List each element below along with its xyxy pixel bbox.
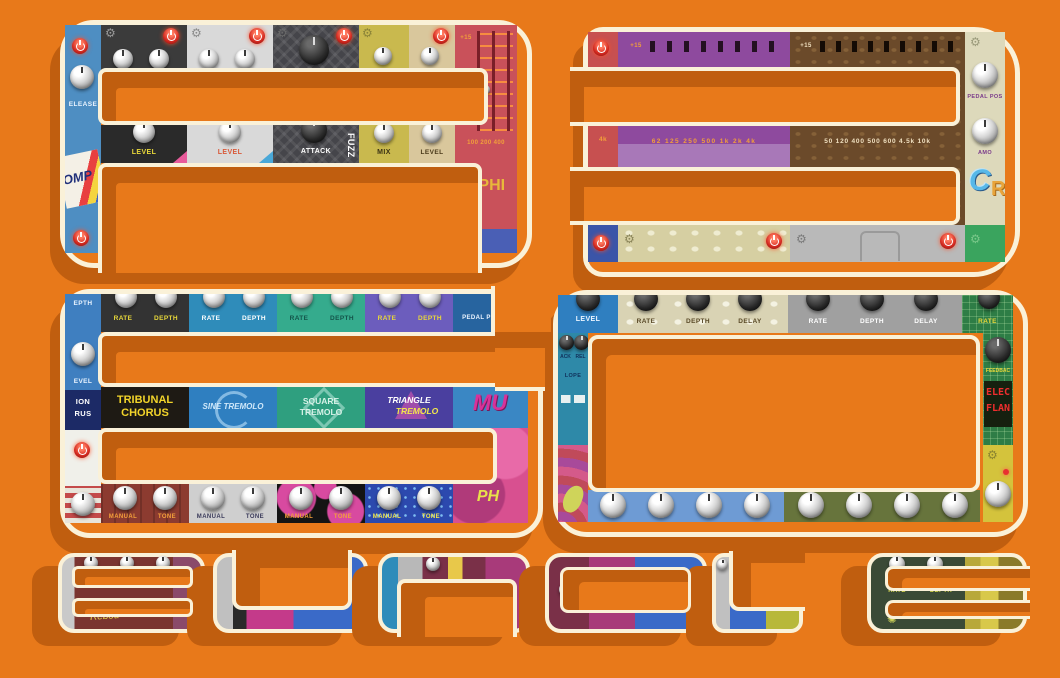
tone-label: TONE (145, 514, 189, 521)
big-knob (301, 125, 327, 143)
depth-label: EPTH (65, 300, 101, 307)
envelope-label: LOPE (558, 373, 588, 379)
rate-label: RATE (279, 315, 319, 322)
mu-label: MU (455, 391, 525, 415)
knob (422, 125, 442, 143)
power-button-icon (433, 28, 449, 44)
purple-eq-plus15: +15 (626, 43, 646, 50)
depth-label: DEPTH (409, 315, 451, 322)
pedal-dark-mid: LEVEL (101, 125, 187, 163)
knob (115, 294, 137, 308)
gear-icon: ⚙ (970, 233, 981, 245)
glyph-a-lower-cutout (98, 163, 482, 273)
amount-label: AMO (965, 150, 1005, 156)
knob (717, 559, 728, 570)
letter-d (545, 553, 707, 633)
elec-led-text: ELEC (984, 387, 1012, 398)
delay-label: DELAY (726, 318, 774, 325)
letter-l-corner-cutout (729, 551, 805, 611)
gear-icon: ⚙ (362, 27, 373, 39)
pedal-magenta-bottom: MANUAL TONE (277, 484, 365, 523)
pedal-green-flanger-top: RATE (962, 295, 1013, 333)
level-label: LEVEL (187, 149, 273, 157)
pedal-pos-knob (972, 62, 998, 88)
glyph-6-shape: EPTH EVEL ION RUS RATE DEPTH RATE (60, 289, 543, 538)
knob (894, 492, 920, 518)
power-button-icon (593, 40, 609, 56)
sine-tremolo-panel: SINE TREMOLO (189, 387, 277, 428)
tremolo-label: TREMOLO (373, 407, 453, 416)
release-label: REL (573, 355, 588, 361)
tribunal-label: TRIBUNAL (101, 394, 189, 406)
pedal-speckle-bottom: MANUAL TONE (365, 484, 453, 523)
power-button-icon (249, 28, 265, 44)
tremolo-label: TREMOLO (277, 408, 365, 417)
knob (860, 295, 884, 311)
tone-label: TONE (321, 514, 365, 521)
gray-pedal-graphic (860, 231, 900, 261)
knob (235, 49, 255, 69)
letter-u (213, 553, 368, 633)
pedal-yellow-top: ⚙ (359, 25, 409, 71)
knob (798, 492, 824, 518)
pedal-diamondplate-mid: ATTACK FUZZ (273, 125, 359, 163)
knob (155, 294, 177, 308)
knob (243, 294, 265, 308)
sticker-text: OMP (65, 167, 93, 188)
knob (634, 295, 658, 311)
tone-label: TONE (233, 514, 277, 521)
power-button-icon (74, 442, 90, 458)
manual-label: MANUAL (277, 514, 321, 521)
purple-eq-freqs: 62 125 250 500 1k 2k 4k (618, 138, 790, 145)
knob (846, 492, 872, 518)
pedal-gray-top: ⚙ (187, 25, 273, 71)
caelum-c-logo: C (969, 164, 991, 198)
level-knob (71, 342, 95, 366)
depth-label: DEPTH (321, 315, 363, 322)
stomp-sticker: OMP (65, 149, 101, 209)
pedal-green-bottom: ⚙ (965, 225, 1005, 262)
knob (942, 492, 968, 518)
knob (419, 294, 441, 308)
release-label: ELEASE (65, 101, 101, 108)
knob (203, 294, 225, 308)
knob (149, 49, 169, 69)
pedal-diamondplate-top: ⚙ (273, 25, 359, 71)
knob (374, 125, 394, 143)
delay-label: DELAY (902, 318, 950, 325)
pedal-pos-label: PEDAL POS (965, 94, 1005, 100)
glyph-a-shape: ELEASE OMP ⚙ ⚙ ⚙ ⚙ (60, 20, 532, 268)
pedal-yellow-mid: MIX (359, 125, 409, 163)
knob (576, 295, 600, 311)
knob (600, 492, 626, 518)
fuzz-vertical-label: FUZZ (345, 127, 355, 163)
knob (199, 49, 219, 69)
glyph-a-upper-cutout (98, 68, 488, 125)
pedal-gray-delay: RATE DEPTH DELAY (788, 295, 962, 333)
knob (133, 125, 155, 143)
knob (914, 295, 938, 311)
phaser-swirl-strip (558, 445, 588, 522)
manual-label: MANUAL (365, 514, 409, 521)
gear-icon: ⚙ (191, 27, 202, 39)
letter-n (378, 553, 530, 633)
pedal-cream-delay: RATE DEPTH DELAY (618, 295, 788, 333)
level-label: LEVEL (558, 316, 618, 324)
knob (219, 125, 241, 143)
tribunal-chorus-panel: TRIBUNAL CHORUS (101, 387, 189, 428)
letter-u-notch (232, 550, 352, 610)
knob (978, 295, 1000, 309)
gear-icon: ⚙ (987, 449, 998, 461)
letter-e-upper-slot (885, 566, 1030, 591)
depth-label: DEPTH (848, 318, 896, 325)
knob (648, 492, 674, 518)
letter-b-lower-slot (72, 598, 193, 617)
glyph-3-upper-cutout (570, 67, 960, 126)
pedal-tremolo-4: RATE DEPTH (365, 294, 453, 332)
pedal-gray-mid: LEVEL (187, 125, 273, 163)
knob (291, 294, 313, 308)
big-knob (299, 35, 329, 65)
pedal-lightblue-bottom (588, 490, 784, 522)
brown-eq-freqs: 50 120 400 500 600 4.5k 10k (790, 138, 965, 145)
power-button-icon (73, 230, 89, 246)
mix-label: MIX (359, 149, 409, 157)
letter-d-slot (560, 567, 691, 613)
name-line1: ION (65, 398, 101, 406)
pedal-cream-column: ⚙ PEDAL POS AMO C R (965, 32, 1005, 225)
level-label: LEVEL (409, 149, 455, 156)
power-button-icon (593, 235, 609, 251)
knob (379, 294, 401, 308)
envelope-graphic (561, 395, 585, 403)
triangle-tremolo-panel: TRIANGLE TREMOLO (365, 387, 453, 428)
power-button-icon (940, 233, 956, 249)
glyph-6-lower-cutout (98, 428, 497, 484)
poster-canvas: ELEASE OMP ⚙ ⚙ ⚙ ⚙ (0, 0, 1060, 678)
glyph-3-lower-cutout (570, 167, 960, 225)
pedal-compressor-strip: ELEASE OMP (65, 25, 101, 253)
power-button-icon (72, 38, 88, 54)
chorus-name-panel: ION RUS (65, 390, 101, 430)
pedal-tremolo-2: RATE DEPTH (189, 294, 277, 332)
rate-label: RATE (962, 318, 1013, 325)
glyph-6-upper-cutout-extension (495, 332, 545, 391)
knob (744, 492, 770, 518)
knob (71, 492, 95, 516)
knob (374, 47, 392, 65)
pedal-dark-top: ⚙ (101, 25, 187, 71)
eq-4k-label: 4k (588, 136, 618, 143)
yellow-pedal-strip: ⚙ (983, 445, 1013, 522)
knob (289, 486, 313, 510)
manual-label: MANUAL (189, 514, 233, 521)
knob (738, 295, 762, 311)
rate-label: RATE (103, 315, 143, 322)
knob (377, 486, 401, 510)
purple-eq-sliders (650, 41, 782, 52)
letter-n-notch (397, 579, 517, 637)
letter-b: Rebou (58, 553, 205, 633)
pedal-maroon-bottom: MANUAL TONE (101, 484, 189, 523)
ph-label: PH (463, 488, 513, 506)
eq-freqs-label: 100 200 400 (455, 140, 517, 147)
glyph-0-shape: LEVEL RATE DEPTH DELAY RATE DEPTH DELAY … (553, 290, 1028, 537)
knob (574, 335, 588, 350)
yellow-figure (560, 483, 586, 515)
release-knob (70, 65, 94, 89)
glyph-6-upper-cutout (98, 332, 499, 387)
rate-label: RATE (367, 315, 407, 322)
attack-label: ACK (558, 355, 573, 361)
pedal-tremolo-1: RATE DEPTH (101, 294, 189, 332)
feedback-knob (985, 337, 1011, 363)
rate-label: RATE (622, 318, 670, 325)
rate-label: RATE (794, 318, 842, 325)
pedal-blue-level: LEVEL (558, 295, 618, 333)
flan-led-text: FLAN (984, 403, 1012, 414)
red-led-dot (1003, 469, 1009, 475)
knob (559, 335, 574, 350)
knob (806, 295, 830, 311)
striped-strip (65, 486, 101, 523)
knob (421, 47, 439, 65)
depth-label: DEPTH (233, 315, 275, 322)
pedal-tan-top (409, 25, 455, 71)
glyph-6-corner-cutout (491, 286, 551, 332)
knob (426, 557, 440, 571)
gear-icon: ⚙ (624, 233, 635, 245)
pedal-tan-mid: LEVEL (409, 125, 455, 163)
glyph-0-cutout (588, 335, 980, 492)
gear-icon: ⚙ (970, 36, 981, 48)
sine-tremolo-label: SINE TREMOLO (189, 403, 277, 412)
knob (153, 486, 177, 510)
depth-label: DEPTH (145, 315, 187, 322)
pedal-tremolo-3: RATE DEPTH (277, 294, 365, 332)
pedal-olive-bottom: ⚙ (618, 225, 790, 262)
glyph-3-shape: 4k +15 62 125 250 500 1k 2k 4k +15 50 12… (583, 27, 1020, 277)
mu-panel: MU (453, 387, 528, 428)
logo-second-letter: R (991, 178, 1005, 201)
white-strip (65, 430, 101, 486)
knob (696, 492, 722, 518)
rate-label: RATE (191, 315, 231, 322)
pedal-olive-bottom (784, 490, 980, 522)
square-label: SQUARE (277, 397, 365, 406)
chorus-pedal-strip: EPTH EVEL ION RUS (65, 294, 101, 523)
amount-knob (972, 118, 998, 144)
knob (329, 486, 353, 510)
depth-label: DEPTH (674, 318, 722, 325)
level-label: EVEL (65, 378, 101, 385)
knob (417, 486, 441, 510)
pedal-gray-bottom: ⚙ (790, 225, 965, 262)
knob (985, 481, 1011, 507)
knob (686, 295, 710, 311)
letter-e: RATE DEPTH ✺ (867, 553, 1027, 633)
level-label: LEVEL (101, 149, 187, 157)
letter-b-upper-slot (72, 566, 193, 588)
brown-eq-sliders (820, 41, 958, 52)
envelope-pedal-strip: ACK REL LOPE (558, 333, 588, 445)
power-button-icon (766, 233, 782, 249)
knob (241, 486, 265, 510)
eq-plus15-label: +15 (457, 35, 475, 42)
pedal-blue-bottom (588, 225, 618, 262)
knob (113, 486, 137, 510)
triangle-label: TRIANGLE (365, 396, 453, 405)
power-button-icon (336, 28, 352, 44)
letter-l (712, 553, 803, 633)
knob (331, 294, 353, 308)
tone-label: TONE (409, 514, 453, 521)
square-tremolo-panel: SQUARE TREMOLO (277, 387, 365, 428)
manual-label: MANUAL (101, 514, 145, 521)
gear-icon: ⚙ (277, 27, 288, 39)
elec-flanger-strip: FEEDBAC ELEC FLAN (983, 333, 1013, 445)
name-line2: RUS (65, 410, 101, 418)
brown-eq-plus15: +15 (796, 43, 816, 50)
gear-icon: ⚙ (796, 233, 807, 245)
chorus-label: CHORUS (101, 407, 189, 419)
power-button-icon (163, 28, 179, 44)
gear-icon: ⚙ (105, 27, 116, 39)
feedback-label: FEEDBAC (983, 369, 1013, 375)
led-display-panel: ELEC FLAN (984, 381, 1012, 427)
knob (201, 486, 225, 510)
pedal-gray-bottom: MANUAL TONE (189, 484, 277, 523)
knob (113, 49, 133, 69)
letter-e-lower-slot (885, 600, 1030, 619)
